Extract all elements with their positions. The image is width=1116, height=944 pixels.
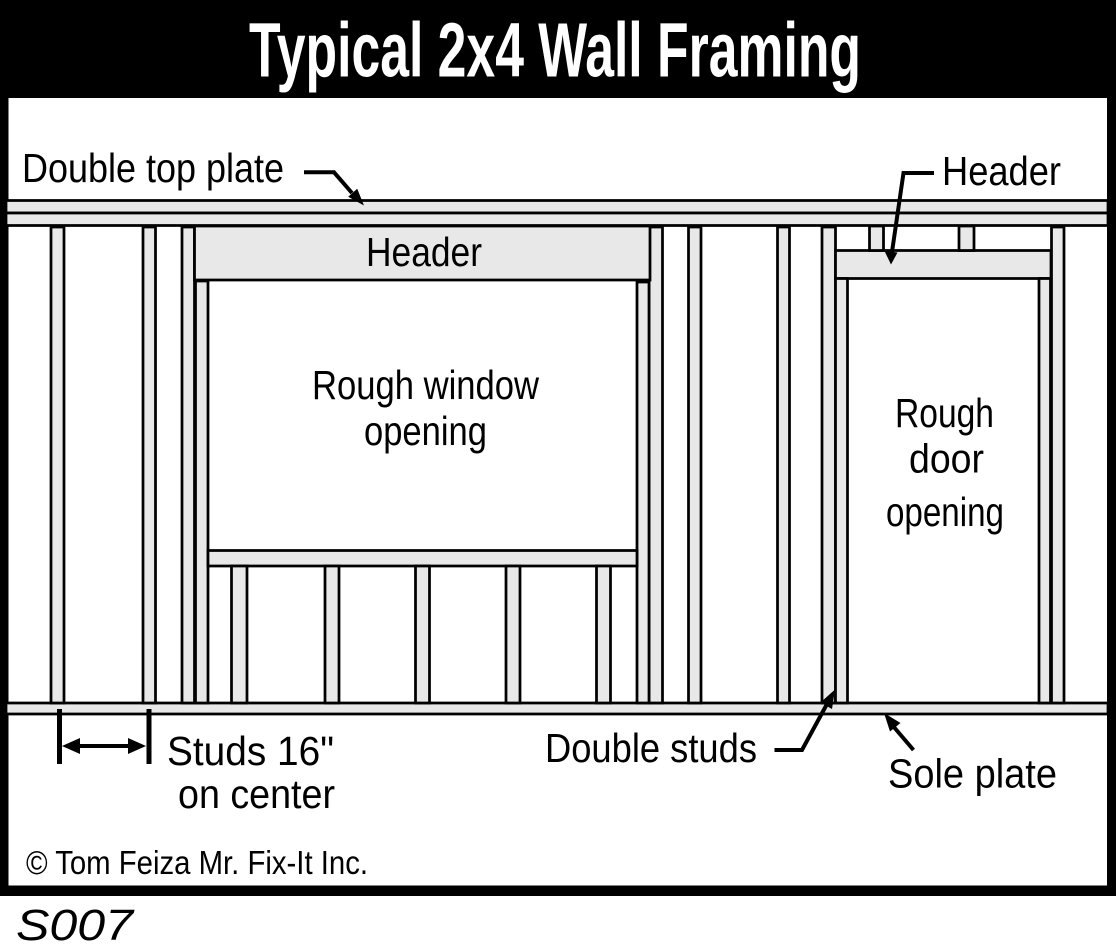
svg-text:Rough window: Rough window [312,362,539,408]
svg-text:door: door [909,436,984,482]
svg-text:Sole plate: Sole plate [888,751,1057,797]
svg-text:Rough: Rough [895,390,994,436]
svg-text:opening: opening [364,408,487,454]
svg-text:Double top plate: Double top plate [22,145,284,191]
svg-text:Studs 16": Studs 16" [167,728,334,774]
svg-text:Typical 2x4 Wall Framing: Typical 2x4 Wall Framing [249,8,861,94]
svg-text:Header: Header [942,148,1061,194]
svg-text:Double studs: Double studs [545,725,757,771]
svg-text:opening: opening [886,489,1004,535]
svg-text:S007: S007 [16,901,135,944]
svg-text:on center: on center [178,771,335,817]
svg-text:© Tom Feiza Mr. Fix-It Inc.: © Tom Feiza Mr. Fix-It Inc. [26,844,368,881]
svg-text:Header: Header [366,229,482,275]
